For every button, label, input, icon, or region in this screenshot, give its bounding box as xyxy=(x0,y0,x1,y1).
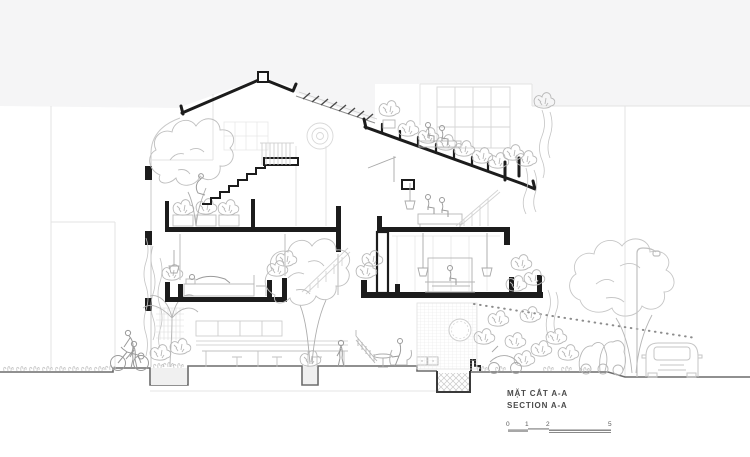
foundation-pit xyxy=(437,371,470,392)
kitchen-person xyxy=(337,340,344,367)
person-lying xyxy=(190,275,231,284)
roof-plants xyxy=(379,101,537,169)
section-sightline xyxy=(474,304,696,338)
high-window xyxy=(224,122,268,150)
roofdeck-wall-stub xyxy=(402,180,414,189)
neighbor-outline-left xyxy=(51,106,115,368)
title-block: MẶT CẮT A-A SECTION A-A 0 1 2 5 xyxy=(506,389,612,433)
floor3-stair-rail xyxy=(456,190,500,226)
master-ceiling-downturn xyxy=(504,227,510,245)
bedroom-window-mullions xyxy=(392,236,500,291)
title-primary: MẶT CẮT A-A xyxy=(507,389,568,398)
bedroom-left-structure xyxy=(165,278,287,302)
neighbor-outline-right xyxy=(532,106,750,377)
ceiling-fan-icon xyxy=(307,123,333,149)
armchair-person xyxy=(390,339,412,367)
floor3-person-1 xyxy=(426,195,435,215)
bedroom-left-planter-plants xyxy=(162,251,297,281)
round-window xyxy=(449,319,471,341)
planter-pit-left xyxy=(151,363,187,385)
master-slab-upstand xyxy=(377,216,382,228)
four-poster-bed xyxy=(425,258,475,292)
scale-tick-5: 5 xyxy=(608,421,612,428)
scale-bar: 0 1 2 5 xyxy=(506,421,612,433)
pendant-lamps-master xyxy=(418,233,492,276)
section-drawing: MẶT CẮT A-A SECTION A-A 0 1 2 5 xyxy=(0,0,750,457)
sky xyxy=(0,0,750,121)
section-drawing-sheet: MẶT CẮT A-A SECTION A-A 0 1 2 5 xyxy=(0,0,750,457)
roofdeck-person-1 xyxy=(426,123,435,143)
kitchen-counter xyxy=(202,351,348,367)
garden-plants xyxy=(474,307,589,372)
cyclist xyxy=(111,330,149,370)
attic-tree xyxy=(150,119,234,226)
roof-cable xyxy=(368,156,396,182)
bed-left xyxy=(184,275,266,296)
car xyxy=(642,343,702,377)
pendant-lamp-left xyxy=(169,250,179,273)
void-stair-rail xyxy=(302,248,350,294)
interior-wall-faint xyxy=(152,94,326,226)
trellis-grid xyxy=(156,308,184,340)
scale-tick-1: 1 xyxy=(525,421,529,428)
scale-tick-0: 0 xyxy=(506,421,510,428)
scale-tick-2: 2 xyxy=(546,421,550,428)
hanging-vines xyxy=(523,110,552,214)
title-secondary: SECTION A-A xyxy=(507,401,568,410)
stair-landing xyxy=(264,158,298,165)
street-tree xyxy=(570,239,674,373)
kitchen-cabinets xyxy=(196,321,348,345)
ridge-vent xyxy=(258,72,268,82)
street-lamp xyxy=(637,248,660,377)
floor3-bench xyxy=(418,214,462,228)
grass-row xyxy=(4,366,115,371)
attic-slab xyxy=(255,227,340,232)
master-ceiling-slab xyxy=(377,227,510,232)
stair-lower xyxy=(356,330,377,363)
attic-wall-cut xyxy=(336,206,341,252)
stair-flight xyxy=(202,162,265,204)
perforated-brick-wall xyxy=(417,303,477,369)
